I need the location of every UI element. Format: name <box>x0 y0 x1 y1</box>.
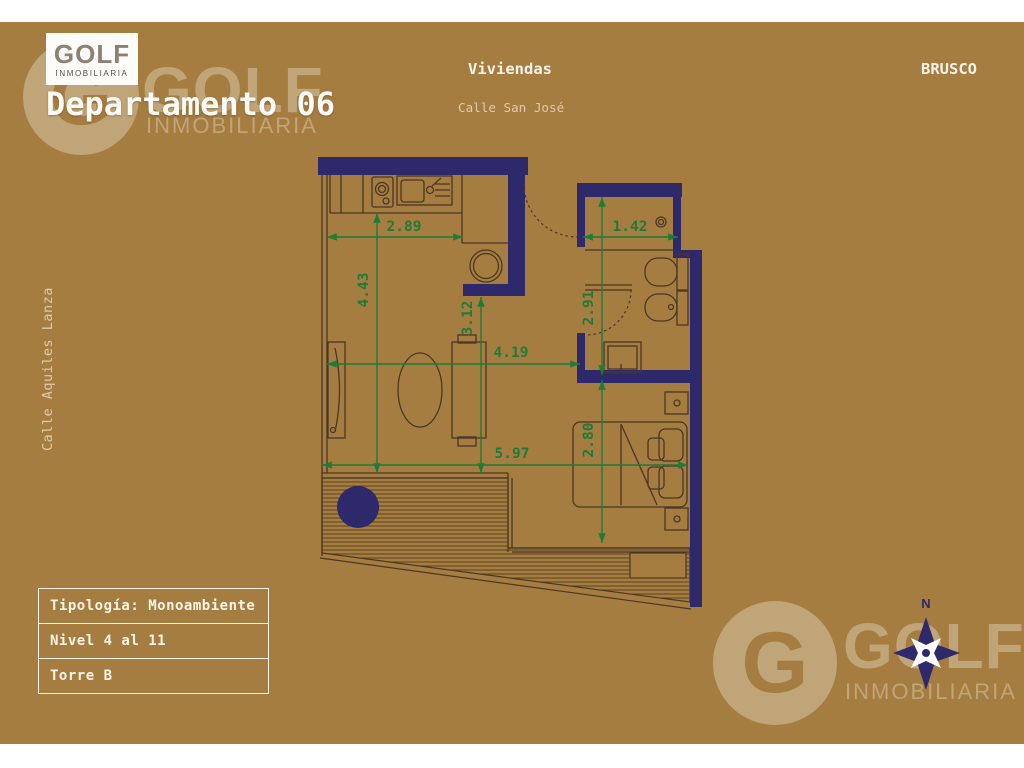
dimension-labels: 2.89 4.43 3.12 1.42 2.91 4.19 5.97 2.80 <box>356 219 647 462</box>
page-title: Departamento 06 <box>46 85 335 123</box>
dim-pass-height: 3.12 <box>460 301 476 336</box>
entry-door-arc <box>524 184 577 237</box>
bedroom-furniture <box>573 392 688 530</box>
unit-info-table: Tipología: Monoambiente Nivel 4 al 11 To… <box>38 588 269 694</box>
dim-closet-width: 1.42 <box>613 219 648 235</box>
golf-logo: GOLF INMOBILIARIA <box>46 33 138 85</box>
bidet-icon <box>677 291 688 325</box>
flyer-page: G GOLF INMOBILIARIA G GOLF INMOBILIARIA … <box>0 0 1024 768</box>
compass-north-label: N <box>921 596 930 611</box>
terrace-table-icon <box>337 486 379 528</box>
dim-bath-height: 2.91 <box>581 290 597 325</box>
living-furniture <box>328 335 486 446</box>
dim-kitchen-width: 2.89 <box>387 219 422 235</box>
terrace-deck <box>320 478 691 609</box>
golf-logo-text: GOLF <box>54 41 130 67</box>
bathroom <box>585 217 688 372</box>
dim-living-width: 4.19 <box>494 345 529 361</box>
golf-logo-subtext: INMOBILIARIA <box>56 69 129 78</box>
nightstand-icon <box>665 392 688 414</box>
table-row-torre: Torre B <box>39 659 268 693</box>
toilet-icon <box>677 254 688 290</box>
washer-icon <box>470 250 502 282</box>
dim-living-height: 4.43 <box>356 273 372 308</box>
table-row-tipologia: Tipología: Monoambiente <box>39 589 268 624</box>
dim-total-width: 5.97 <box>495 446 530 462</box>
table-row-nivel: Nivel 4 al 11 <box>39 624 268 659</box>
compass-rose-icon: N <box>893 596 960 690</box>
dim-bedroom-width: 2.80 <box>581 423 597 458</box>
nightstand-icon <box>665 508 688 530</box>
